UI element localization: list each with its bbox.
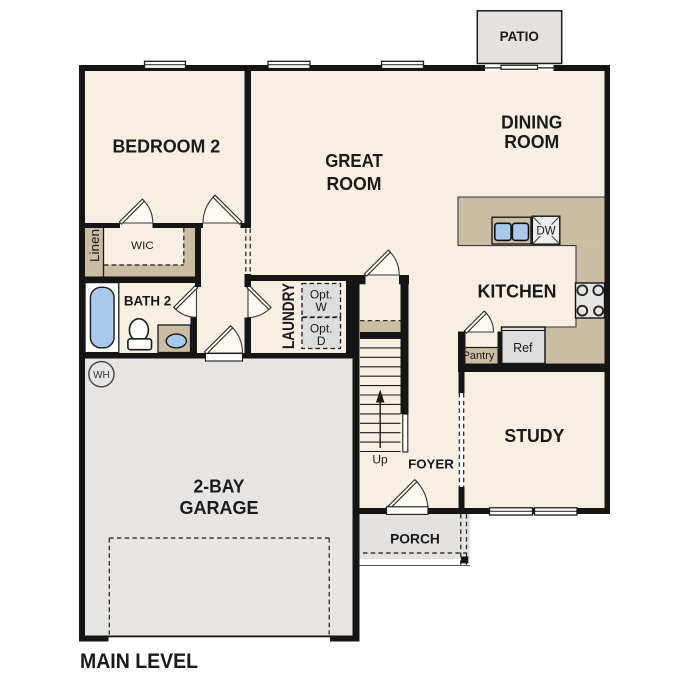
svg-text:FOYER: FOYER: [408, 456, 454, 471]
svg-text:W: W: [316, 300, 328, 314]
svg-text:Linen: Linen: [88, 229, 102, 262]
svg-text:Pantry: Pantry: [463, 350, 495, 362]
svg-text:DINING: DINING: [501, 112, 562, 132]
svg-text:GREAT: GREAT: [325, 151, 383, 171]
svg-text:BATH 2: BATH 2: [124, 293, 171, 309]
svg-text:WH: WH: [93, 370, 110, 381]
svg-text:Up: Up: [372, 453, 388, 467]
svg-text:STUDY: STUDY: [504, 426, 564, 446]
svg-text:WIC: WIC: [131, 240, 154, 252]
svg-text:KITCHEN: KITCHEN: [478, 281, 557, 301]
svg-text:ROOM: ROOM: [327, 174, 382, 194]
svg-text:DW: DW: [536, 226, 555, 238]
svg-text:LAUNDRY: LAUNDRY: [279, 282, 298, 349]
svg-text:2-BAY: 2-BAY: [194, 477, 245, 497]
svg-text:BEDROOM 2: BEDROOM 2: [112, 137, 220, 157]
svg-text:MAIN LEVEL: MAIN LEVEL: [80, 650, 198, 673]
svg-text:Ref: Ref: [513, 341, 533, 355]
svg-text:PORCH: PORCH: [390, 532, 440, 547]
svg-text:PATIO: PATIO: [500, 29, 539, 44]
svg-text:D: D: [317, 334, 326, 348]
svg-text:ROOM: ROOM: [504, 132, 559, 152]
svg-text:GARAGE: GARAGE: [180, 498, 259, 518]
